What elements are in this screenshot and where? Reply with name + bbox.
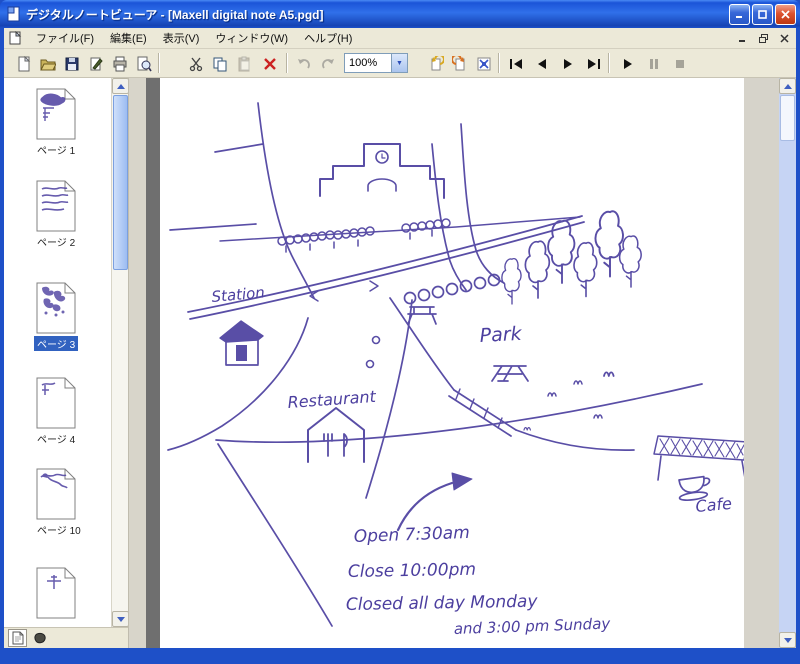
redo-button[interactable]	[316, 52, 340, 76]
closed-day-line: Closed all day Monday	[346, 592, 539, 615]
stop-icon	[674, 58, 686, 70]
drawing-page[interactable]: Station Park Restaurant Cafe Open 7:30am…	[160, 78, 744, 648]
rotate-left-icon	[428, 56, 444, 72]
zoom-select[interactable]: 100% ▼	[344, 53, 408, 73]
pane-splitter[interactable]	[128, 78, 146, 648]
ink-blob-icon	[34, 632, 47, 645]
print-button[interactable]	[108, 52, 132, 76]
thumbnail-pane: ページ 1 ページ 2	[4, 78, 111, 627]
mdi-close-button[interactable]	[775, 30, 794, 47]
thumbnail-page-3[interactable]: ページ 3	[34, 282, 78, 353]
pages-tab-button[interactable]	[8, 629, 27, 647]
sidebar-scrollbar-thumb[interactable]	[113, 95, 128, 270]
next-page-icon	[562, 58, 574, 70]
zoom-value: 100%	[345, 57, 391, 69]
copy-button[interactable]	[208, 52, 232, 76]
paste-clipboard-icon	[236, 56, 252, 72]
window-bottom-border	[0, 648, 800, 664]
page-thumbnail-icon	[36, 282, 76, 334]
mdi-minimize-button[interactable]	[733, 30, 752, 47]
minimize-icon	[734, 9, 745, 20]
up-arrow-icon	[117, 84, 125, 89]
rotate-right-icon	[452, 56, 468, 72]
toolbar-separator	[286, 53, 288, 73]
page-thumbnail-icon	[36, 468, 76, 520]
canvas-scrollbar[interactable]	[779, 78, 796, 648]
park-label: Park	[479, 323, 523, 347]
thumbnail-page-6[interactable]	[34, 567, 78, 627]
titlebar[interactable]: デジタルノートビューア - [Maxell digital note A5.pg…	[0, 0, 800, 28]
prev-page-button[interactable]	[530, 52, 554, 76]
toolbar-separator	[498, 53, 500, 73]
first-page-button[interactable]	[504, 52, 528, 76]
fit-page-button[interactable]	[472, 52, 496, 76]
station-label: Station	[211, 283, 266, 306]
delete-x-icon	[262, 56, 278, 72]
save-button[interactable]	[60, 52, 84, 76]
canvas-left-margin	[146, 78, 160, 648]
sidebar-scroll-down-button[interactable]	[112, 611, 129, 627]
page-thumbnail-icon	[36, 180, 76, 232]
delete-button[interactable]	[258, 52, 282, 76]
play-button[interactable]	[616, 52, 640, 76]
thumbnail-page-2[interactable]: ページ 2	[34, 180, 78, 251]
redo-arrow-icon	[320, 56, 336, 72]
import-pen-icon	[88, 56, 104, 72]
next-page-button[interactable]	[556, 52, 580, 76]
thumbnail-label: ページ 1	[34, 142, 78, 157]
page-thumbnail-icon	[36, 88, 76, 140]
canvas-area: Station Park Restaurant Cafe Open 7:30am…	[146, 78, 796, 648]
thumbnail-page-1[interactable]: ページ 1	[34, 88, 78, 159]
rotate-left-button[interactable]	[424, 52, 448, 76]
paste-button[interactable]	[232, 52, 256, 76]
minimize-button[interactable]	[729, 4, 750, 25]
print-preview-button[interactable]	[132, 52, 156, 76]
ink-tab-button[interactable]	[31, 629, 50, 647]
mdi-restore-icon	[759, 34, 768, 43]
stop-button[interactable]	[668, 52, 692, 76]
page-thumbnail-icon	[36, 377, 76, 429]
menubar: ファイル(F) 編集(E) 表示(V) ウィンドウ(W) ヘルプ(H)	[4, 28, 796, 49]
toolbar-separator	[608, 53, 610, 73]
pause-button[interactable]	[642, 52, 666, 76]
play-icon	[622, 58, 634, 70]
undo-arrow-icon	[296, 56, 312, 72]
content-area: ページ 1 ページ 2	[4, 78, 796, 648]
last-page-icon	[587, 58, 601, 70]
window-title: デジタルノートビューア - [Maxell digital note A5.pg…	[26, 6, 727, 23]
cafe-label: Cafe	[695, 494, 733, 516]
thumbnail-page-10[interactable]: ページ 10	[34, 468, 78, 539]
menu-item-file[interactable]: ファイル(F)	[28, 27, 102, 49]
close-icon	[780, 9, 791, 20]
thumbnail-label: ページ 3	[34, 336, 78, 351]
import-button[interactable]	[84, 52, 108, 76]
maximize-icon	[757, 9, 768, 20]
sidebar-scroll-up-button[interactable]	[112, 78, 129, 94]
thumbnail-label: ページ 10	[34, 522, 84, 537]
scissors-icon	[188, 56, 204, 72]
menu-item-edit[interactable]: 編集(E)	[102, 27, 155, 49]
fit-page-icon	[476, 56, 492, 72]
menu-item-help[interactable]: ヘルプ(H)	[296, 27, 360, 49]
mdi-minimize-icon	[738, 34, 747, 43]
prev-page-icon	[536, 58, 548, 70]
canvas-scroll-up-button[interactable]	[779, 78, 796, 94]
map-drawing: Station Park Restaurant Cafe Open 7:30am…	[160, 78, 744, 648]
page-icon	[12, 631, 24, 645]
cut-button[interactable]	[184, 52, 208, 76]
open-hours-line: Open 7:30am	[353, 523, 470, 547]
mdi-close-icon	[780, 34, 789, 43]
sidebar-scrollbar[interactable]	[111, 78, 128, 627]
printer-icon	[112, 56, 128, 72]
sidebar-tab-row	[4, 627, 128, 648]
save-floppy-icon	[64, 56, 80, 72]
thumbnail-page-4[interactable]: ページ 4	[34, 377, 78, 448]
open-button[interactable]	[36, 52, 60, 76]
menu-item-view[interactable]: 表示(V)	[155, 27, 208, 49]
thumbnail-label: ページ 4	[34, 431, 78, 446]
thumbnail-label: ページ 2	[34, 234, 78, 249]
toolbar: 100% ▼	[4, 49, 796, 78]
print-preview-icon	[136, 56, 152, 72]
restaurant-label: Restaurant	[287, 387, 377, 412]
page-thumbnail-icon	[36, 567, 76, 619]
close-hours-line: Close 10:00pm	[348, 560, 476, 582]
menu-item-window[interactable]: ウィンドウ(W)	[207, 27, 296, 49]
open-folder-icon	[40, 56, 56, 72]
canvas-scroll-down-button[interactable]	[779, 632, 796, 648]
down-arrow-icon	[784, 638, 792, 643]
mdi-restore-button[interactable]	[754, 30, 773, 47]
document-icon	[8, 31, 22, 45]
closed-day-line-2: and 3:00 pm Sunday	[454, 615, 612, 638]
app-icon	[6, 6, 22, 22]
window: デジタルノートビューア - [Maxell digital note A5.pg…	[0, 0, 800, 664]
new-page-icon	[16, 56, 32, 72]
zoom-dropdown-button[interactable]: ▼	[391, 54, 407, 72]
last-page-button[interactable]	[582, 52, 606, 76]
up-arrow-icon	[784, 84, 792, 89]
canvas-scrollbar-thumb[interactable]	[780, 95, 795, 141]
down-arrow-icon	[117, 617, 125, 622]
first-page-icon	[509, 58, 523, 70]
copy-icon	[212, 56, 228, 72]
close-button[interactable]	[775, 4, 796, 25]
pause-icon	[648, 58, 660, 70]
maximize-button[interactable]	[752, 4, 773, 25]
rotate-right-button[interactable]	[448, 52, 472, 76]
toolbar-separator	[158, 53, 160, 73]
new-button[interactable]	[12, 52, 36, 76]
undo-button[interactable]	[292, 52, 316, 76]
